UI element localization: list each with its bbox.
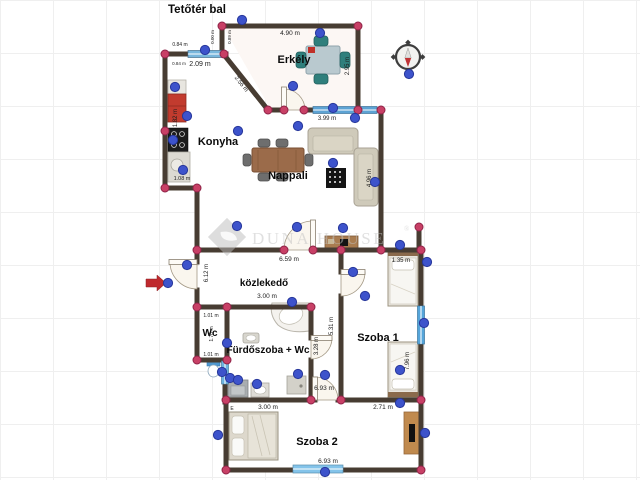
measurement-label: 1.82 m bbox=[173, 109, 179, 127]
measurement-label: 4.90 m bbox=[280, 30, 300, 37]
corner-node[interactable] bbox=[309, 246, 317, 254]
measurement-label: 3.00 m bbox=[257, 293, 277, 300]
wall-handle[interactable] bbox=[293, 121, 302, 130]
shower-drain bbox=[299, 384, 302, 387]
wall-handle[interactable] bbox=[182, 260, 191, 269]
measurement-label: 1.70 m bbox=[209, 326, 215, 341]
corner-node[interactable] bbox=[337, 246, 345, 254]
balcony-chair-bottom[interactable] bbox=[314, 74, 328, 84]
room-label-konyha: Konyha bbox=[198, 136, 239, 148]
measurement-label: 0.84 m bbox=[172, 61, 186, 66]
bath-sink-basin bbox=[246, 335, 256, 341]
corner-node[interactable] bbox=[415, 223, 423, 231]
corner-node[interactable] bbox=[193, 303, 201, 311]
corner-node[interactable] bbox=[193, 184, 201, 192]
corner-node[interactable] bbox=[300, 106, 308, 114]
room-label-nappali: Nappali bbox=[268, 170, 308, 182]
sofa-seat bbox=[313, 136, 353, 151]
measurement-label: 0.00 m bbox=[210, 30, 215, 44]
corner-node[interactable] bbox=[222, 466, 230, 474]
measurement-label: 6.12 m bbox=[204, 264, 210, 282]
wall-handle[interactable] bbox=[287, 297, 296, 306]
bed2-headboard bbox=[388, 392, 418, 397]
corner-node[interactable] bbox=[161, 184, 169, 192]
corner-node[interactable] bbox=[193, 246, 201, 254]
measurement-label: 2.95 m bbox=[345, 57, 351, 75]
pillow bbox=[232, 438, 244, 456]
wall-handle[interactable] bbox=[320, 370, 329, 379]
corner-node[interactable] bbox=[377, 106, 385, 114]
measurement-label: 0.84 m bbox=[172, 42, 187, 48]
washing-machine-door bbox=[231, 386, 245, 395]
wall-handle[interactable] bbox=[395, 240, 404, 249]
wall-handle[interactable] bbox=[350, 113, 359, 122]
wall-handle[interactable] bbox=[338, 223, 347, 232]
corner-node[interactable] bbox=[223, 356, 231, 364]
wall-handle[interactable] bbox=[170, 82, 179, 91]
wall-handle[interactable] bbox=[419, 318, 428, 327]
floorplan-svg: DUNA HOUSE ® Tetőtér bal ErkélyKonyhaNap… bbox=[0, 0, 640, 480]
wall-handle[interactable] bbox=[404, 69, 413, 78]
pillow bbox=[232, 416, 244, 434]
corner-node[interactable] bbox=[280, 246, 288, 254]
wall-handle[interactable] bbox=[360, 291, 369, 300]
corner-node[interactable] bbox=[223, 303, 231, 311]
wall-handle[interactable] bbox=[288, 81, 297, 90]
corner-node[interactable] bbox=[264, 106, 272, 114]
measurement-label: 2.09 m bbox=[189, 61, 211, 68]
wall-handle[interactable] bbox=[420, 428, 429, 437]
measurement-label: 6.93 m bbox=[314, 385, 334, 392]
dining-chair[interactable] bbox=[305, 154, 313, 166]
wall-handle[interactable] bbox=[200, 45, 209, 54]
wall-handle[interactable] bbox=[292, 222, 301, 231]
wall-handle[interactable] bbox=[328, 158, 337, 167]
wall-handle[interactable] bbox=[422, 257, 431, 266]
wall-handle[interactable] bbox=[348, 267, 357, 276]
room-label-szoba1: Szoba 1 bbox=[357, 332, 399, 344]
floorplan-canvas: DUNA HOUSE ® Tetőtér bal ErkélyKonyhaNap… bbox=[0, 0, 640, 480]
wall-handle[interactable] bbox=[252, 379, 261, 388]
bed2-pillow bbox=[392, 379, 414, 389]
coffee-table[interactable] bbox=[326, 168, 346, 188]
wall-handle[interactable] bbox=[232, 221, 241, 230]
measurement-label: 1.01 m bbox=[203, 313, 218, 319]
measurement-label: 6.59 m bbox=[279, 256, 299, 263]
dining-chair[interactable] bbox=[276, 139, 288, 147]
corner-node[interactable] bbox=[377, 246, 385, 254]
corner-node[interactable] bbox=[417, 246, 425, 254]
page-title: Tetőtér bal bbox=[168, 4, 226, 16]
corner-node[interactable] bbox=[307, 396, 315, 404]
measurement-label: 1.01 m bbox=[203, 352, 218, 358]
corner-node[interactable] bbox=[220, 50, 228, 58]
measurement-label: 1.35 m bbox=[392, 258, 410, 264]
wall-handle[interactable] bbox=[395, 365, 404, 374]
room-label-kozlekedo: közlekedő bbox=[240, 278, 288, 289]
corner-node[interactable] bbox=[280, 106, 288, 114]
measurement-label: 7.96 m bbox=[405, 352, 411, 370]
wall-handle[interactable] bbox=[217, 367, 226, 376]
measurement-label: 6.93 m bbox=[318, 458, 338, 465]
corner-node[interactable] bbox=[354, 106, 362, 114]
corner-node[interactable] bbox=[193, 356, 201, 364]
tv bbox=[409, 424, 415, 442]
measurement-label: 1.08 m bbox=[174, 176, 191, 182]
corner-node[interactable] bbox=[222, 396, 230, 404]
wall-handle[interactable] bbox=[293, 369, 302, 378]
dining-chair[interactable] bbox=[258, 139, 270, 147]
measurement-label: 3.99 m bbox=[318, 116, 336, 122]
measurement-label: 0.89 m bbox=[227, 30, 232, 44]
corner-node[interactable] bbox=[307, 303, 315, 311]
wall-handle[interactable] bbox=[233, 126, 242, 135]
corner-node[interactable] bbox=[417, 396, 425, 404]
corner-node[interactable] bbox=[337, 396, 345, 404]
blanket bbox=[248, 414, 276, 458]
measurement-label: 5.31 m bbox=[329, 317, 335, 335]
measurement-label: 3.00 m bbox=[258, 404, 278, 411]
wall-handle[interactable] bbox=[233, 375, 242, 384]
corner-node[interactable] bbox=[354, 22, 362, 30]
measurement-label: 3.28 m bbox=[314, 337, 320, 355]
balcony-table-item bbox=[308, 47, 315, 53]
wall-handle[interactable] bbox=[320, 467, 329, 476]
corner-node[interactable] bbox=[417, 466, 425, 474]
wall-handle[interactable] bbox=[182, 111, 191, 120]
wall-handle[interactable] bbox=[163, 278, 172, 287]
watermark-brand: DUNA HOUSE bbox=[252, 229, 386, 248]
corner-node[interactable] bbox=[161, 127, 169, 135]
wall-handle[interactable] bbox=[395, 398, 404, 407]
wall-handle[interactable] bbox=[178, 165, 187, 174]
measurement-label: 2.71 m bbox=[373, 404, 393, 411]
wall-handle[interactable] bbox=[370, 177, 379, 186]
wall-handle[interactable] bbox=[237, 15, 246, 24]
room-label-erkely: Erkély bbox=[277, 54, 311, 66]
wall-handle[interactable] bbox=[222, 338, 231, 347]
watermark-registered: ® bbox=[404, 225, 412, 233]
wall-handle[interactable] bbox=[315, 28, 324, 37]
room-label-furdoszoba: Fürdőszoba + Wc bbox=[226, 345, 310, 356]
dining-chair[interactable] bbox=[243, 154, 251, 166]
corner-node[interactable] bbox=[218, 22, 226, 30]
wall-handle[interactable] bbox=[168, 135, 177, 144]
wall-handle[interactable] bbox=[328, 103, 337, 112]
corner-node[interactable] bbox=[161, 50, 169, 58]
wall-handle[interactable] bbox=[213, 430, 222, 439]
room-label-szoba2: Szoba 2 bbox=[296, 436, 338, 448]
